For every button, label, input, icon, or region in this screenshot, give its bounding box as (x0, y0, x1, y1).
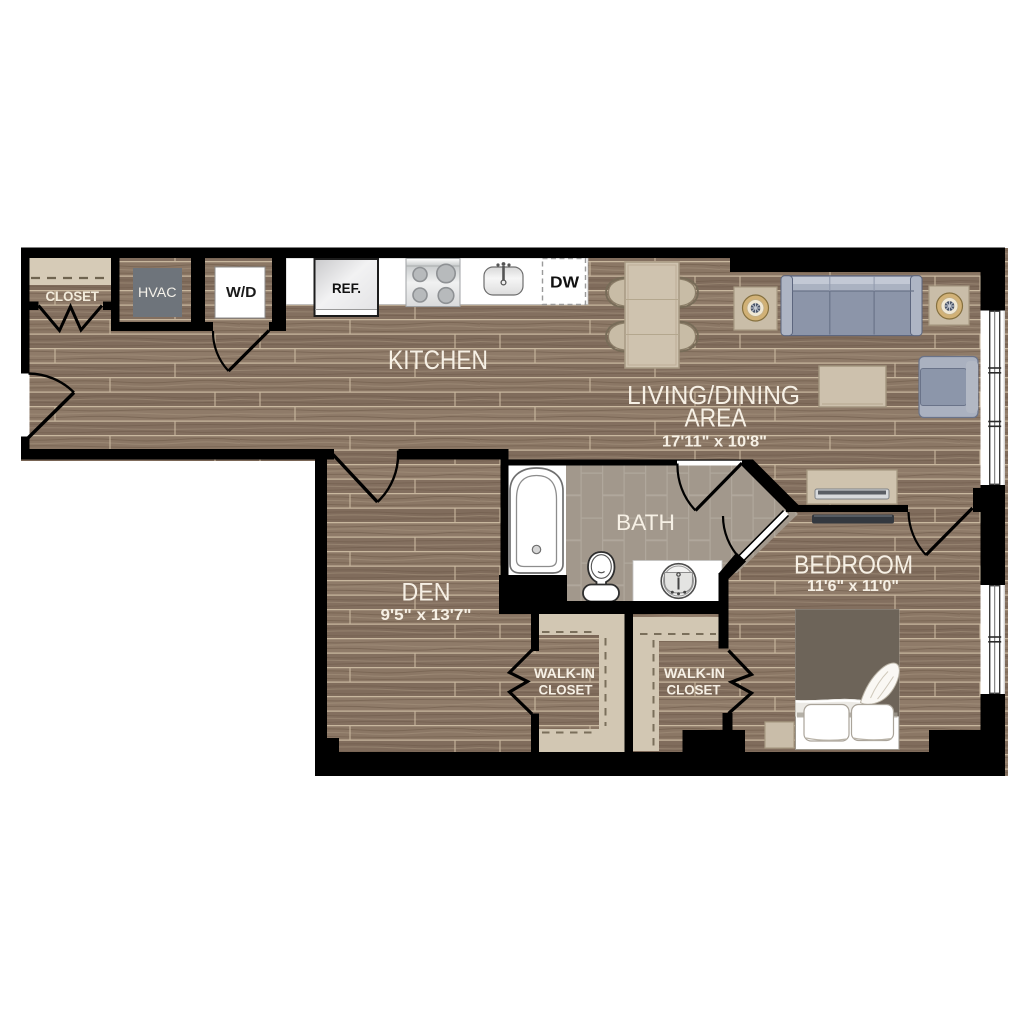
svg-text:AREA: AREA (685, 403, 748, 433)
svg-text:CLOSET: CLOSET (667, 682, 721, 698)
svg-text:BATH: BATH (616, 510, 675, 535)
svg-text:CLOSET: CLOSET (46, 289, 100, 304)
svg-text:11'6" x 11'0": 11'6" x 11'0" (807, 578, 899, 595)
svg-text:DW: DW (550, 275, 579, 292)
svg-text:REF.: REF. (332, 280, 361, 296)
svg-text:WALK-IN: WALK-IN (664, 665, 725, 681)
svg-text:CLOSET: CLOSET (539, 682, 593, 698)
svg-text:W/D: W/D (226, 284, 257, 301)
svg-text:9'5" x 13'7": 9'5" x 13'7" (381, 607, 472, 624)
svg-text:KITCHEN: KITCHEN (388, 345, 488, 375)
svg-text:BEDROOM: BEDROOM (794, 550, 913, 580)
svg-text:DEN: DEN (402, 579, 451, 607)
svg-text:17'11" x 10'8": 17'11" x 10'8" (662, 434, 767, 451)
svg-text:WALK-IN: WALK-IN (534, 665, 595, 681)
svg-text:HVAC: HVAC (138, 285, 177, 300)
